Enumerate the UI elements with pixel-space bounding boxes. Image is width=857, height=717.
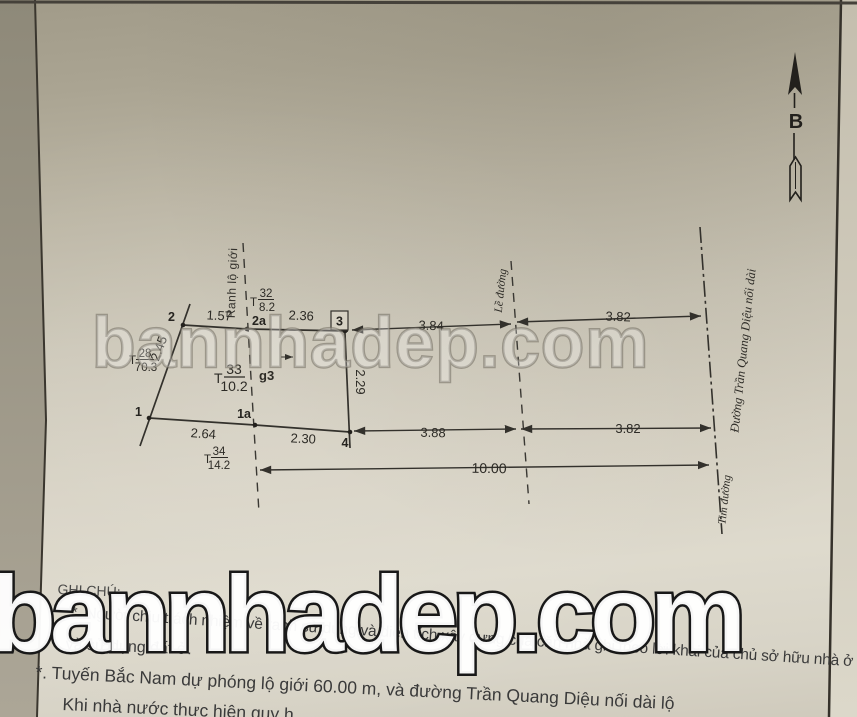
dim-bottom-1-1a: 2.64 xyxy=(190,425,216,442)
watermark-middle: bannhadep.com xyxy=(92,308,649,379)
parcel-t34-area: 14.2 xyxy=(208,460,230,472)
point-label-1: 1 xyxy=(135,405,142,419)
dim-bottom-4-curb: 3.88 xyxy=(420,425,446,440)
point-label-4: 4 xyxy=(342,436,349,450)
photo-right-margin xyxy=(829,0,857,717)
point-dot-4 xyxy=(348,430,353,435)
dim-overall: 10.00 xyxy=(471,460,507,477)
point-dot-1a xyxy=(253,423,258,428)
parcel-t34-number: 34 xyxy=(213,446,226,458)
parcel-label-t34: T 34 14.2 xyxy=(204,446,230,472)
scanned-survey-photo: 2 2a 3 1 1a 4 1.57 2.36 3.84 3.82 2.45 2… xyxy=(0,0,857,717)
point-label-1a: 1a xyxy=(237,407,252,421)
watermark-bottom: bannhadep.com xyxy=(0,560,740,668)
north-arrow: B xyxy=(788,52,803,200)
point-dot-1 xyxy=(147,416,152,421)
road-name-label: Đường Trần Quang Diệu nối dài xyxy=(727,268,758,435)
dim-bottom-curb-center: 3.82 xyxy=(615,421,640,436)
north-arrow-head xyxy=(788,52,802,95)
road-centerline xyxy=(700,227,722,534)
paper-top-edge xyxy=(0,2,857,3)
north-label: B xyxy=(789,111,803,133)
dim-bottom-1a-4: 2.30 xyxy=(290,430,316,446)
parcel-t32-number: 32 xyxy=(260,288,273,300)
